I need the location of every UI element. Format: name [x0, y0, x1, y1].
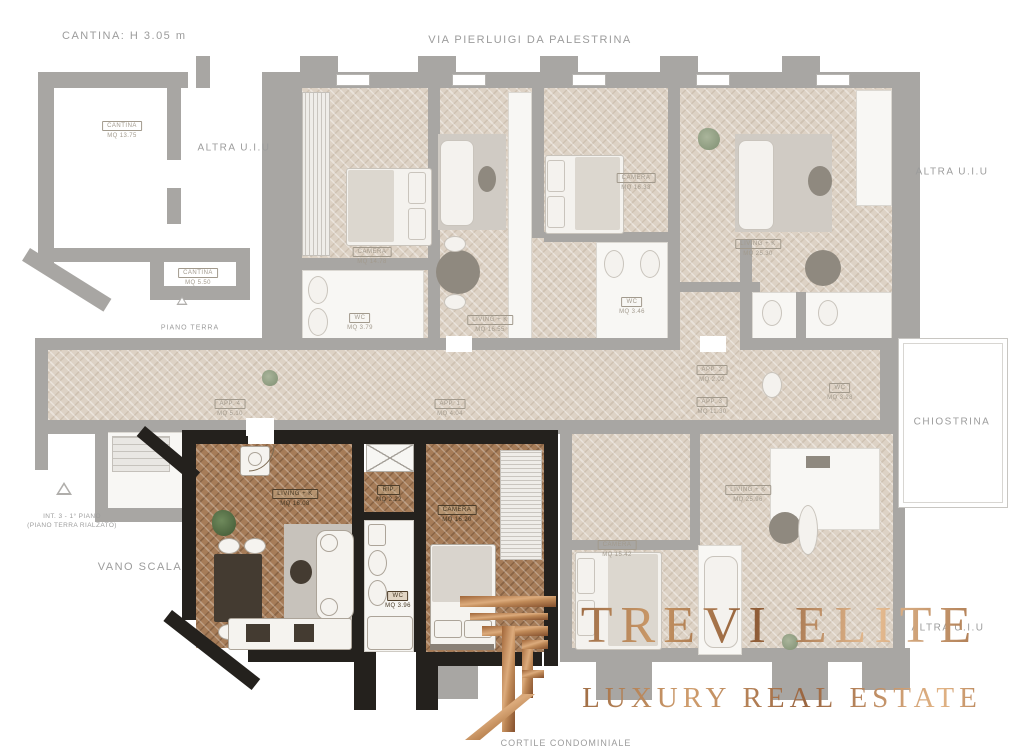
bathroom-c-upper — [856, 90, 892, 206]
room-name: WC — [388, 591, 409, 601]
room-name: CAMERA — [617, 173, 656, 183]
bath-fixture — [762, 372, 782, 398]
room-name: CAMERA — [353, 247, 392, 257]
room-name: APP. 2 — [697, 365, 728, 375]
room-name: CANTINA — [102, 121, 142, 131]
room-area: MQ 11.30 — [697, 409, 726, 415]
bath-fixture — [762, 300, 782, 326]
room-name: APP. 1 — [435, 399, 466, 409]
int-line2: (PIANO TERRA RIALZATO) — [27, 522, 117, 529]
door-gap — [700, 336, 726, 352]
wardrobe — [302, 92, 330, 256]
room-label-living-b: LIVING + K MQ 16.55 — [467, 315, 513, 333]
room-label-camera: CAMERA MQ 16.20 — [438, 505, 477, 523]
wall-left-thick — [262, 72, 302, 345]
bed-blanket — [575, 157, 620, 230]
hl-entry-door-gap — [248, 430, 274, 444]
int-line1: INT. 3 - 1° PIANO — [43, 513, 101, 520]
street-label: VIA PIERLUIGI DA PALESTRINA — [428, 34, 632, 46]
north-arrow-icon — [56, 482, 72, 495]
wall-segment — [35, 338, 48, 470]
wall-partition — [690, 434, 700, 544]
plant — [212, 510, 236, 536]
brand-tagline: LUXURY REAL ESTATE — [556, 682, 1008, 715]
room-label-cantina-1: CANTINA MQ 13.75 — [102, 121, 142, 139]
altra-uiu-left: ALTRA U.I.U — [198, 143, 271, 154]
room-label-cantina-2: CANTINA MQ 5.50 — [178, 268, 218, 286]
room-name: WC — [622, 297, 643, 307]
bath-fixture — [308, 308, 328, 336]
room-area: MQ 5.10 — [217, 411, 243, 417]
room-label-app2: APP. 2 MQ 2.02 — [697, 365, 728, 383]
bench — [798, 505, 818, 555]
room-area: MQ 16.33 — [621, 185, 651, 191]
sofa-cushion — [320, 534, 338, 552]
cortile-label: CORTILE CONDOMINIALE — [501, 738, 632, 748]
side-table — [290, 560, 312, 584]
sofa — [738, 140, 774, 230]
room-label-wc: WC MQ 3.96 — [385, 591, 411, 609]
room-name: CANTINA — [178, 268, 218, 278]
window — [452, 74, 486, 86]
room-area: MQ 2.22 — [376, 497, 402, 503]
room-area: MQ 15.42 — [602, 552, 632, 558]
room-area: MQ 3.96 — [385, 603, 411, 609]
room-label-camera-b: CAMERA MQ 16.33 — [617, 173, 656, 191]
sofa — [440, 140, 474, 226]
room-label-app1: APP. 1 MQ 4.04 — [435, 399, 466, 417]
round-table — [769, 512, 801, 544]
door-gap — [446, 336, 472, 352]
room-name: CAMERA — [598, 540, 637, 550]
room-label-wc-a: WC MQ 3.79 — [347, 313, 373, 331]
room-area: MQ 16.55 — [475, 327, 505, 333]
hl-wall-kitchen-bottom — [248, 648, 362, 662]
wall-segment — [167, 188, 181, 224]
trevi-elite-monogram-icon — [456, 582, 564, 740]
vano-scala-label: VANO SCALA — [98, 561, 183, 573]
room-name: APP. 4 — [215, 399, 246, 409]
floor-plan-canvas: CANTINA: H 3.05 m VIA PIERLUIGI DA PALES… — [0, 0, 1024, 755]
bath-fixture — [640, 250, 660, 278]
chair — [218, 538, 240, 554]
pouf — [478, 166, 496, 192]
room-label-living-d: LIVING + K MQ 25.96 — [725, 485, 771, 503]
room-area: MQ 16.20 — [442, 517, 472, 523]
room-area: MQ 13.75 — [107, 133, 137, 139]
room-label-camera-d: CAMERA MQ 15.42 — [598, 540, 637, 558]
hl-wall-stub — [354, 648, 376, 710]
room-area: MQ 25.96 — [733, 497, 763, 503]
room-area: MQ 16.08 — [280, 501, 310, 507]
window — [572, 74, 606, 86]
chiostrina-label: CHIOSTRINA — [914, 417, 991, 428]
wall-partition — [668, 88, 680, 345]
room-name: WC — [830, 383, 851, 393]
bed-pillow — [408, 208, 426, 240]
room-label-camera-a: CAMERA MQ 14.78 — [353, 247, 392, 265]
brand-wordmark: TREVI ELITE — [550, 596, 1010, 655]
room-area: MQ 3.28 — [827, 395, 853, 401]
wall-segment — [38, 72, 54, 264]
wall-segment — [167, 88, 181, 160]
room-label-wc-b: WC MQ 3.46 — [619, 297, 645, 315]
room-area: MQ 2.02 — [699, 377, 725, 383]
cooktop — [806, 456, 830, 468]
room-name: WC — [350, 313, 371, 323]
wall-partition — [532, 88, 544, 238]
kitchen-counter-strip — [508, 92, 532, 340]
wall-segment — [196, 56, 210, 88]
bed-pillow — [408, 172, 426, 204]
room-area: MQ 3.46 — [619, 309, 645, 315]
room-name: LIVING + K — [272, 489, 318, 499]
bed-blanket — [348, 170, 394, 242]
room-area: MQ 5.50 — [185, 280, 211, 286]
chair — [444, 294, 466, 310]
shaft-x — [366, 444, 414, 472]
room-label-living-c: LIVING + K MQ 25.30 — [735, 239, 781, 257]
level-arrow-icon — [176, 296, 187, 305]
bath-sink — [368, 524, 386, 546]
window — [336, 74, 370, 86]
wall-segment — [38, 72, 188, 88]
dining-table — [214, 554, 262, 622]
room-name: CAMERA — [438, 505, 477, 515]
room-name: LIVING + K — [735, 239, 781, 249]
plant — [698, 128, 720, 150]
piano-terra-label: PIANO TERRA — [161, 325, 219, 332]
wall-segment — [150, 286, 250, 300]
altra-uiu-right: ALTRA U.I.U — [916, 167, 989, 178]
hl-wall-partition — [414, 444, 426, 652]
sofa-cushion — [320, 598, 338, 616]
round-table — [805, 250, 841, 286]
room-name: RIP. — [378, 485, 401, 495]
kitchen-sink — [294, 624, 314, 642]
round-table — [436, 250, 480, 294]
room-name: LIVING + K — [725, 485, 771, 495]
room-name: APP. 3 — [697, 397, 728, 407]
hl-wall-left — [182, 430, 196, 620]
wall-segment — [880, 338, 898, 432]
room-label-rip: RIP. MQ 2.22 — [376, 485, 402, 503]
door-arc — [248, 444, 276, 472]
bath-fixture — [308, 276, 328, 304]
pouf — [808, 166, 832, 196]
room-name: LIVING + K — [467, 315, 513, 325]
bed-pillow — [547, 160, 565, 192]
hl-wall-partition — [364, 512, 414, 520]
int-unit-label: INT. 3 - 1° PIANO (PIANO TERRA RIALZATO) — [27, 512, 117, 530]
room-area: MQ 14.78 — [357, 259, 387, 265]
room-area: MQ 4.04 — [437, 411, 463, 417]
bath-fixture — [818, 300, 838, 326]
room-area: MQ 25.30 — [743, 251, 773, 257]
chair — [444, 236, 466, 252]
cooktop — [246, 624, 270, 642]
wall-right — [892, 72, 920, 338]
bed-pillow — [547, 196, 565, 228]
room-label-app3: APP. 3 MQ 11.30 — [697, 397, 728, 415]
toilet — [368, 550, 387, 576]
cantina-title: CANTINA: H 3.05 m — [62, 30, 187, 42]
chair — [244, 538, 266, 554]
room-label-app4: APP. 4 MQ 5.10 — [215, 399, 246, 417]
wardrobe — [500, 450, 542, 560]
room-area: MQ 3.79 — [347, 325, 373, 331]
room-label-wc-c: WC MQ 3.28 — [827, 383, 853, 401]
window — [696, 74, 730, 86]
bed-pillow — [577, 558, 595, 594]
wall-segment — [54, 248, 250, 262]
shower — [367, 616, 413, 650]
bath-fixture — [604, 250, 624, 278]
window — [816, 74, 850, 86]
plant — [262, 370, 278, 386]
room-label-living: LIVING + K MQ 16.08 — [272, 489, 318, 507]
